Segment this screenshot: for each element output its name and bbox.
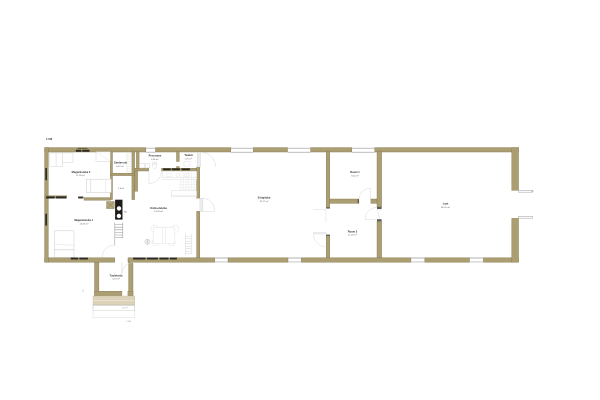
svg-text:11,46 m²: 11,46 m² (348, 234, 357, 237)
svg-text:16,35 m²: 16,35 m² (80, 223, 89, 226)
svg-text:Köök-elutuba: Köök-elutuba (150, 206, 167, 210)
svg-text:Söögituba: Söögituba (258, 196, 271, 200)
svg-text:Ruum 2: Ruum 2 (348, 229, 358, 233)
svg-text:1,6 m²: 1,6 m² (118, 187, 124, 190)
svg-text:11,36 m²: 11,36 m² (76, 174, 85, 177)
svg-text:9,42 m²: 9,42 m² (351, 174, 359, 177)
svg-text:4,46 m²: 4,46 m² (151, 158, 159, 161)
svg-text:4,19 m²: 4,19 m² (112, 278, 120, 281)
svg-text:32,77 m²: 32,77 m² (260, 200, 269, 203)
svg-text:Tuulekoda: Tuulekoda (110, 273, 123, 277)
svg-text:1:100: 1:100 (46, 138, 53, 141)
svg-text:Magamistuba 1: Magamistuba 1 (74, 218, 93, 222)
svg-text:Garderoob: Garderoob (114, 161, 128, 165)
svg-text:4,67 m²: 4,67 m² (116, 165, 124, 168)
svg-text:4,2 m²: 4,2 m² (122, 307, 128, 310)
svg-text:19,43 m²: 19,43 m² (154, 210, 163, 213)
svg-text:Pliit: Pliit (124, 210, 127, 213)
svg-text:1,75 m²: 1,75 m² (184, 157, 192, 160)
svg-text:Magamistuba 2: Magamistuba 2 (72, 170, 91, 174)
svg-text:1:100: 1:100 (126, 321, 132, 323)
svg-text:Laut: Laut (443, 202, 449, 206)
svg-text:Tualett: Tualett (184, 153, 192, 157)
svg-text:Pesuruum: Pesuruum (149, 154, 162, 158)
svg-text:Ruum 1: Ruum 1 (350, 170, 360, 174)
svg-text:86,20 m²: 86,20 m² (441, 206, 450, 209)
